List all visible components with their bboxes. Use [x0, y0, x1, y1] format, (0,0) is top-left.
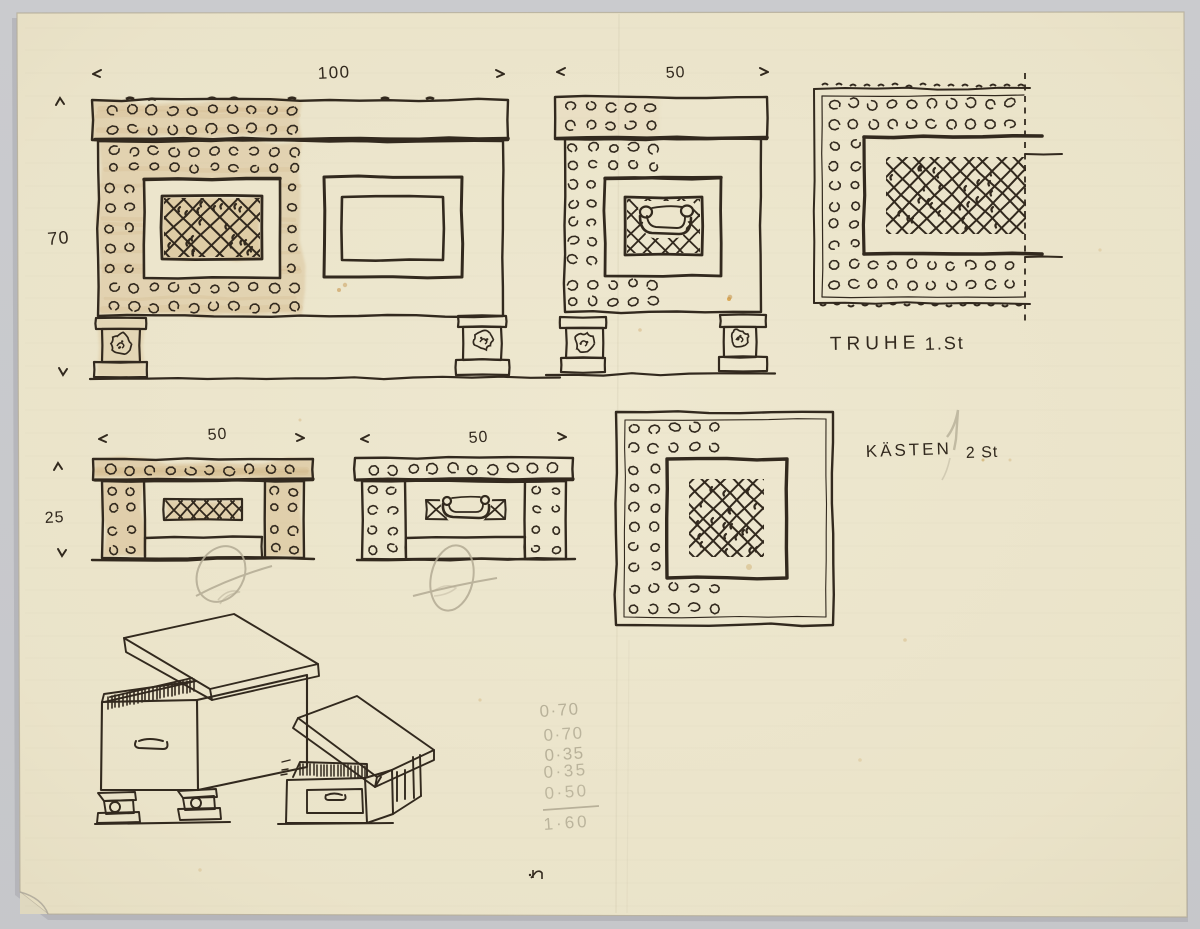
svg-text:100: 100 — [317, 62, 351, 83]
svg-text:1·60: 1·60 — [543, 812, 590, 834]
svg-text:70: 70 — [47, 227, 71, 249]
svg-text:0·35: 0·35 — [543, 760, 588, 782]
svg-text:1.St: 1.St — [924, 333, 965, 354]
svg-text:50: 50 — [665, 64, 686, 82]
svg-text:50: 50 — [207, 426, 228, 444]
svg-text:TRUHE: TRUHE — [830, 332, 921, 355]
svg-text:0·70: 0·70 — [543, 723, 584, 745]
svg-text:0·70: 0·70 — [539, 699, 580, 721]
svg-text:KÄSTEN: KÄSTEN — [865, 439, 952, 461]
svg-text:25: 25 — [44, 509, 65, 527]
svg-text:0·50: 0·50 — [544, 781, 589, 803]
svg-text:50: 50 — [468, 429, 489, 447]
